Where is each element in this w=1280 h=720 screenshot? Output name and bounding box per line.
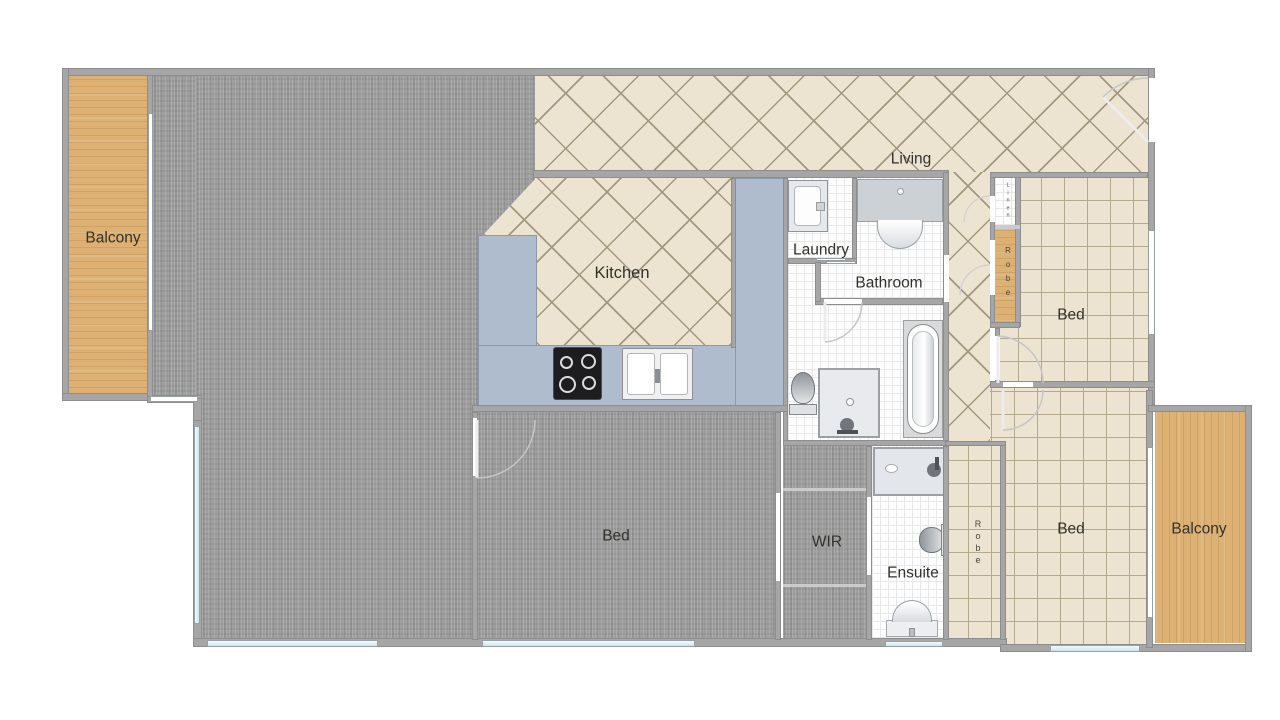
door-swing-arc — [477, 420, 535, 478]
room-label-wir: WIR — [812, 534, 842, 550]
door-swing-arc — [998, 336, 1043, 383]
room-label-ensuite: Ensuite — [887, 565, 939, 581]
room-label-robe-bottom: Robe — [975, 518, 982, 566]
door-swing-overlay — [0, 0, 1280, 720]
room-label-living: Living — [891, 151, 932, 167]
door-swing-arc — [964, 196, 990, 222]
room-label-balcony-left: Balcony — [85, 230, 140, 246]
floor-plan: Balcony Living Kitchen Laundry Bathroom … — [0, 0, 1280, 720]
door-swing-arc — [960, 265, 990, 295]
room-label-kitchen: Kitchen — [594, 265, 649, 282]
room-label-bed-middle: Bed — [602, 528, 630, 544]
door-leaf — [1103, 97, 1148, 142]
room-label-balcony-right: Balcony — [1171, 521, 1226, 537]
room-label-bed-top: Bed — [1057, 307, 1085, 323]
room-label-robe-top: Robe — [1005, 244, 1011, 300]
door-swing-arc — [825, 302, 862, 342]
door-swing-arc — [1003, 390, 1043, 430]
room-label-laundry: Laundry — [793, 242, 849, 258]
room-label-bed-bottom: Bed — [1057, 521, 1085, 537]
room-label-linen: Linen — [1006, 182, 1009, 220]
door-swing-arc — [1103, 78, 1148, 97]
room-label-bathroom: Bathroom — [855, 275, 922, 291]
